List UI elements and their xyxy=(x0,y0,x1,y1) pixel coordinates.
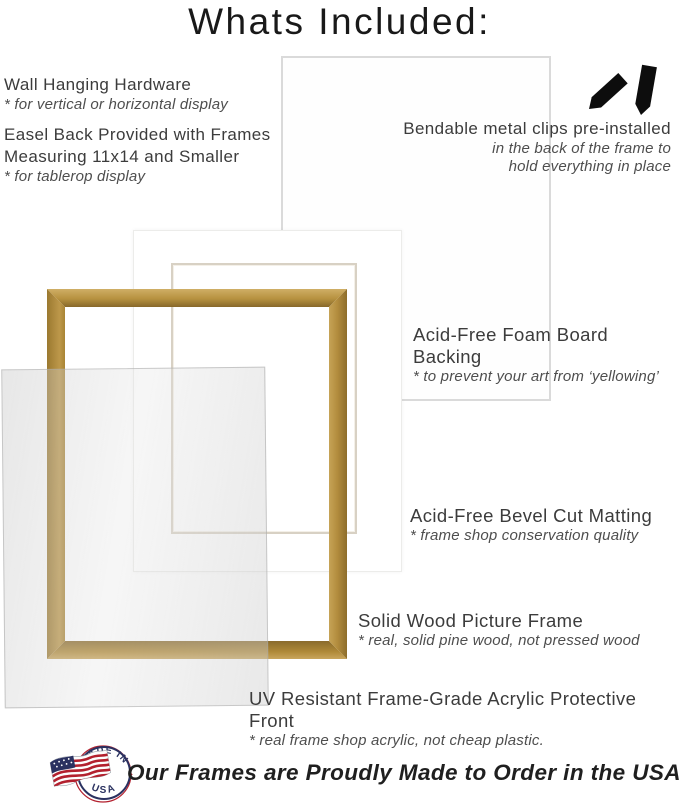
foam-board-heading: Acid-Free Foam Board Backing xyxy=(413,324,679,368)
acrylic-front-label: UV Resistant Frame-Grade Acrylic Protect… xyxy=(249,688,679,750)
frame-top-rail xyxy=(47,289,347,307)
made-in-usa-tagline: Our Frames are Proudly Made to Order in … xyxy=(127,760,679,786)
svg-text:USA: USA xyxy=(90,782,118,796)
whats-included-infographic: Whats Included: Wall Hanging Hardware * … xyxy=(0,0,679,807)
acrylic-front-sub: * real frame shop acrylic, not cheap pla… xyxy=(249,732,679,750)
easel-back-line1: Easel Back Provided with Frames xyxy=(4,124,271,146)
metal-clips-icon xyxy=(583,59,668,121)
matting-sub: * frame shop conservation quality xyxy=(410,527,652,545)
wood-frame-label: Solid Wood Picture Frame * real, solid p… xyxy=(358,610,640,650)
acrylic-sheet-graphic xyxy=(1,367,269,709)
matting-heading: Acid-Free Bevel Cut Matting xyxy=(410,505,652,527)
page-title: Whats Included: xyxy=(0,1,679,43)
bendable-clips-sub2: hold everything in place xyxy=(403,158,671,176)
bendable-clips-heading: Bendable metal clips pre-installed xyxy=(403,118,671,140)
foam-board-sub: * to prevent your art from ‘yellowing’ xyxy=(413,368,679,386)
wood-frame-heading: Solid Wood Picture Frame xyxy=(358,610,640,632)
wall-hanging-heading: Wall Hanging Hardware xyxy=(4,74,228,96)
bendable-clips-note: Bendable metal clips pre-installed in th… xyxy=(403,118,671,175)
badge-bottom-text: USA xyxy=(90,782,118,796)
wall-hanging-note: Wall Hanging Hardware * for vertical or … xyxy=(4,74,228,114)
matting-label: Acid-Free Bevel Cut Matting * frame shop… xyxy=(410,505,652,545)
foam-board-label: Acid-Free Foam Board Backing * to preven… xyxy=(413,324,679,386)
easel-back-line2: Measuring 11x14 and Smaller xyxy=(4,146,271,168)
wall-hanging-sub: * for vertical or horizontal display xyxy=(4,96,228,114)
frame-right-rail xyxy=(329,289,347,659)
bendable-clips-sub1: in the back of the frame to xyxy=(403,140,671,158)
easel-back-note: Easel Back Provided with Frames Measurin… xyxy=(4,124,271,186)
acrylic-front-heading: UV Resistant Frame-Grade Acrylic Protect… xyxy=(249,688,679,732)
wood-frame-sub: * real, solid pine wood, not pressed woo… xyxy=(358,632,640,650)
easel-back-sub: * for tablerop display xyxy=(4,168,271,186)
